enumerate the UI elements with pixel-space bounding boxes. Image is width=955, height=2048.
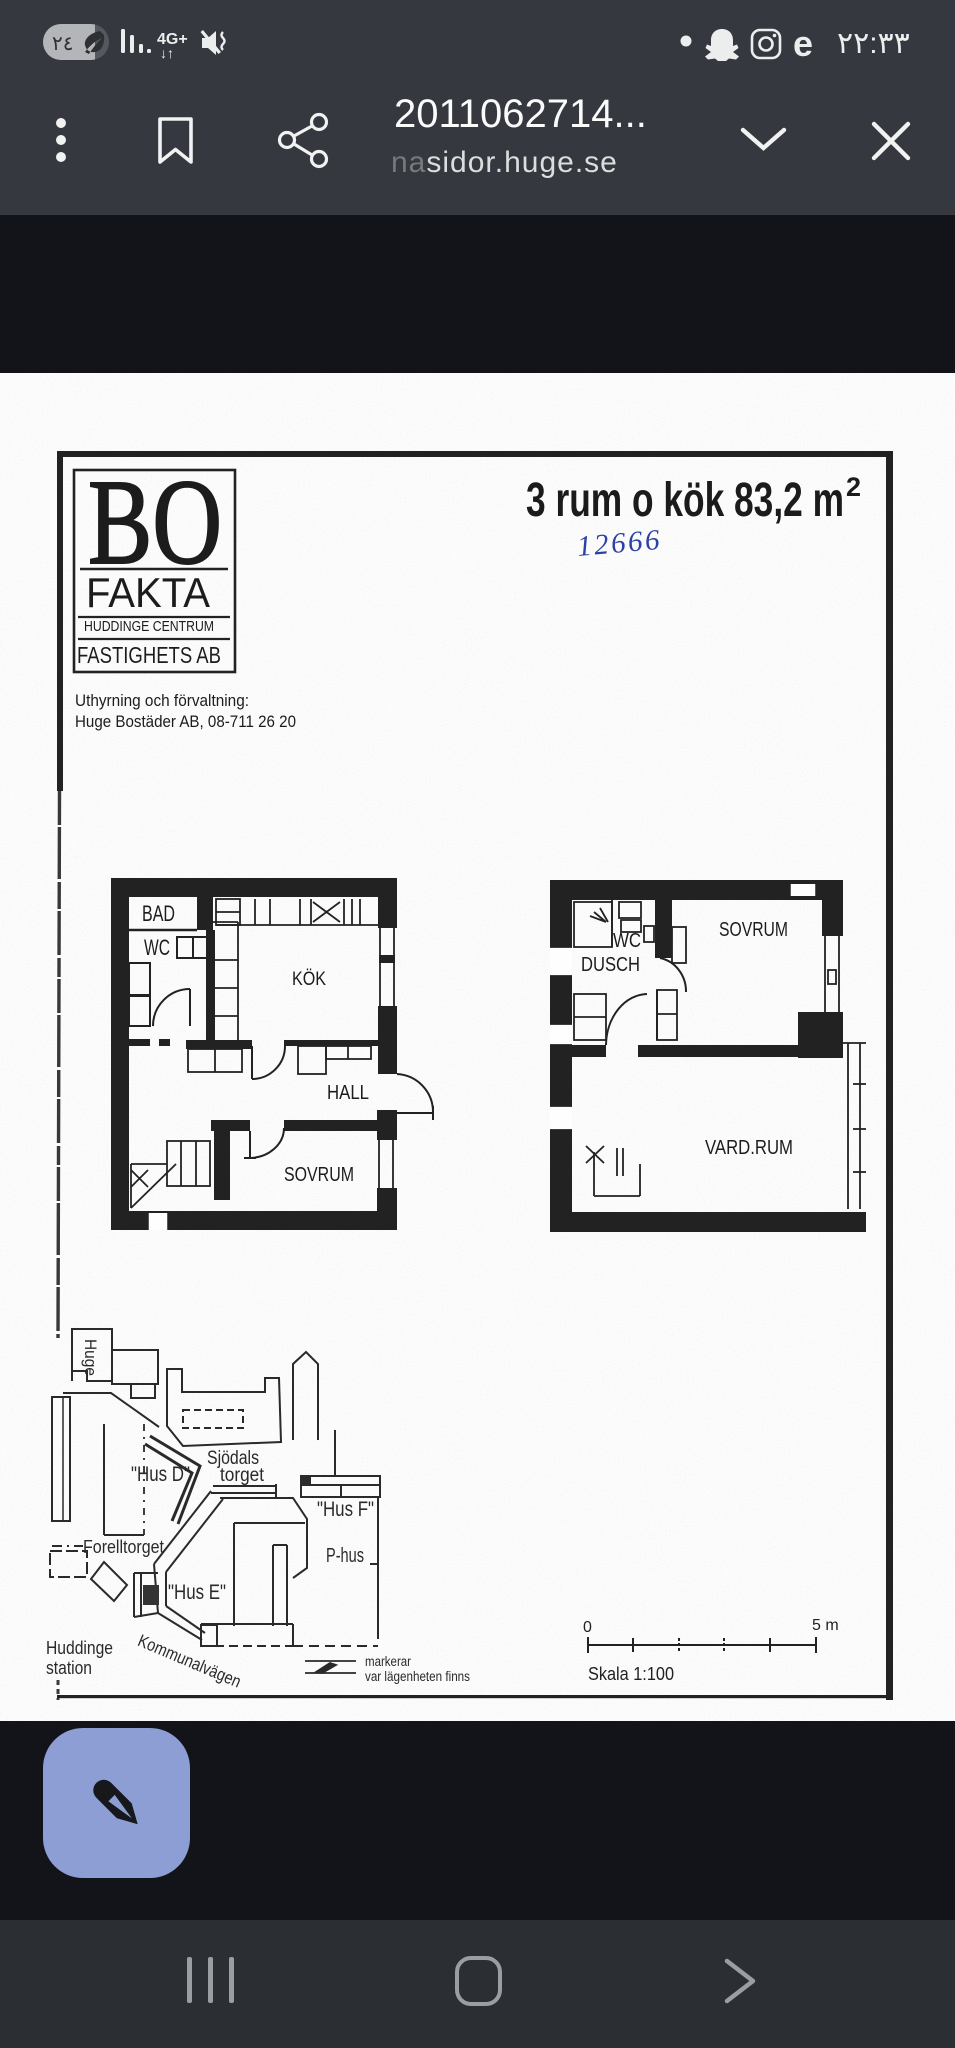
svg-text:Huge: Huge — [81, 1339, 100, 1376]
svg-text:FASTIGHETS AB: FASTIGHETS AB — [77, 642, 221, 668]
svg-text:3 rum o kök 83,2 m: 3 rum o kök 83,2 m — [526, 474, 844, 527]
svg-text:"Hus F": "Hus F" — [317, 1498, 374, 1521]
svg-text:Huddinge: Huddinge — [46, 1638, 113, 1658]
svg-text:VARD.RUM: VARD.RUM — [705, 1137, 793, 1159]
svg-text:↓↑: ↓↑ — [160, 45, 174, 61]
svg-text:٢٢:٣٣: ٢٢:٣٣ — [837, 27, 910, 60]
svg-text:٢٤: ٢٤ — [52, 33, 73, 55]
svg-text:"Hus D": "Hus D" — [131, 1463, 190, 1486]
svg-text:Forelltorget: Forelltorget — [83, 1537, 164, 1557]
svg-text:5 m: 5 m — [812, 1617, 839, 1634]
svg-text:"Hus E": "Hus E" — [168, 1581, 226, 1604]
svg-text:WC: WC — [613, 930, 641, 952]
svg-text:Uthyrning och förvaltning:: Uthyrning och förvaltning: — [75, 691, 249, 710]
svg-text:KÖK: KÖK — [292, 969, 326, 990]
svg-text:SOVRUM: SOVRUM — [719, 919, 788, 941]
svg-text:BAD: BAD — [142, 901, 175, 926]
svg-text:HALL: HALL — [327, 1082, 369, 1104]
svg-text:e: e — [793, 23, 813, 64]
svg-text:var lägenheten finns: var lägenheten finns — [365, 1669, 470, 1684]
svg-text:HUDDINGE CENTRUM: HUDDINGE CENTRUM — [84, 619, 214, 635]
svg-text:markerar: markerar — [365, 1654, 411, 1669]
svg-text:0: 0 — [583, 1619, 592, 1636]
svg-text:torget: torget — [220, 1465, 265, 1486]
svg-text:2: 2 — [846, 472, 861, 502]
svg-text:station: station — [46, 1658, 92, 1678]
svg-text:FAKTA: FAKTA — [86, 569, 210, 616]
svg-text:WC: WC — [144, 935, 170, 960]
svg-text:SOVRUM: SOVRUM — [284, 1164, 354, 1186]
svg-text:Huge Bostäder AB, 08-711 26 20: Huge Bostäder AB, 08-711 26 20 — [75, 712, 296, 731]
svg-text:nasidor.huge.se: nasidor.huge.se — [391, 146, 618, 179]
svg-text:Skala 1:100: Skala 1:100 — [588, 1664, 674, 1684]
svg-text:2011062714...: 2011062714... — [394, 92, 647, 136]
svg-text:P-hus: P-hus — [326, 1545, 364, 1567]
svg-text:DUSCH: DUSCH — [581, 954, 640, 976]
